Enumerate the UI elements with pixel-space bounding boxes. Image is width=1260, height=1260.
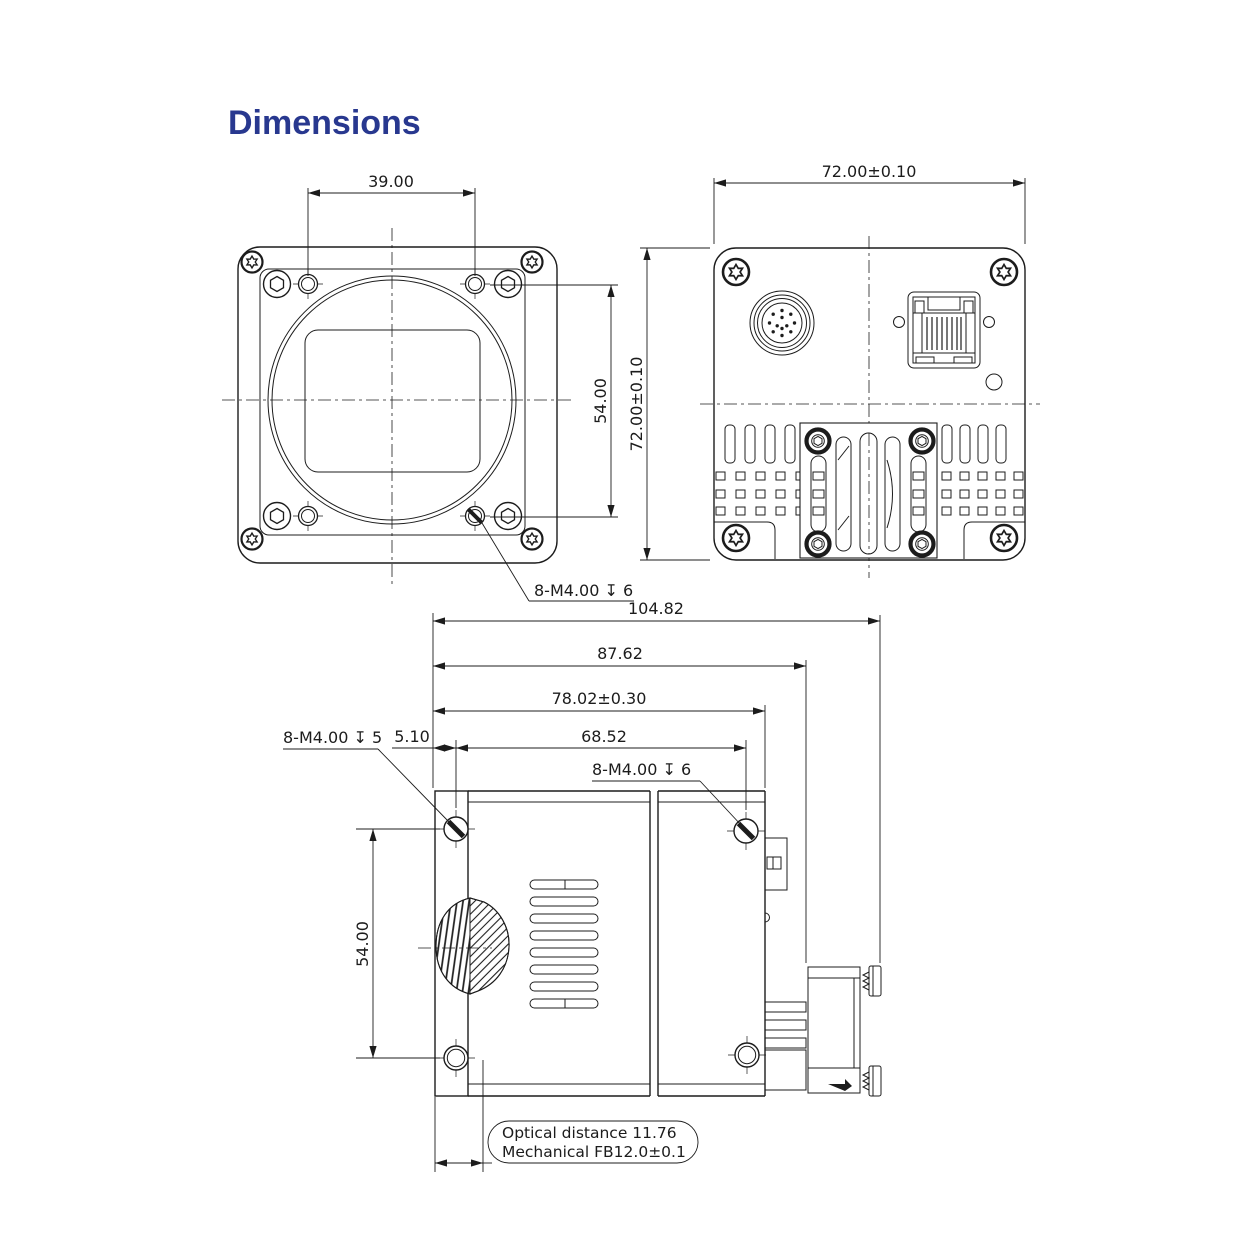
optical-note-bubble: Optical distance 11.76 Mechanical FB12.0…: [488, 1121, 698, 1163]
m4-thread-hole: [293, 501, 323, 531]
corner-screw-icon: [242, 529, 263, 550]
page-title: Dimensions: [228, 104, 421, 142]
note-side-thread-rear: 8-M4.00 ↧ 6: [592, 760, 691, 779]
side-view-dimensions: 104.82 87.62 78.02±0.30 5.10 68.52 54.00…: [283, 599, 880, 1172]
side-screw-icon: [437, 1039, 475, 1077]
dim-back-width: 72.00±0.10: [822, 162, 917, 181]
corner-screw-icon: [522, 252, 543, 273]
note-front-thread: 8-M4.00 ↧ 6: [534, 581, 633, 600]
hex-socket-screw-icon: [264, 271, 291, 298]
dim-front-width: 39.00: [368, 172, 414, 191]
dim-side-height: 54.00: [353, 921, 372, 967]
connector-block: [808, 966, 881, 1096]
dim-side-to-connector: 87.62: [597, 644, 643, 663]
corner-screw-icon: [242, 252, 263, 273]
port-side-hole: [984, 317, 995, 328]
plate-screw-icon: [807, 430, 830, 453]
dim-front-height: 54.00: [591, 378, 610, 424]
hex-socket-screw-icon: [264, 503, 291, 530]
port-side-hole: [894, 317, 905, 328]
thumbscrew: [863, 1066, 881, 1096]
note-side-thread-front: 8-M4.00 ↧ 5: [283, 728, 382, 747]
dim-side-screws: 68.52: [581, 727, 627, 746]
mounting-plate: [800, 423, 937, 558]
note-optical-line2: Mechanical FB12.0±0.1: [502, 1143, 686, 1161]
thumbscrew: [863, 966, 881, 996]
corner-screw-icon: [723, 259, 749, 285]
lens: [418, 898, 509, 994]
corner-screw-icon: [723, 525, 749, 551]
note-optical-line1: Optical distance 11.76: [502, 1124, 677, 1142]
hex-socket-screw-icon: [495, 271, 522, 298]
corner-screw-icon: [991, 525, 1017, 551]
ethernet-port: [894, 292, 995, 368]
dim-back-height: 72.00±0.10: [627, 357, 646, 452]
dimension-drawing-page: Dimensions 39.00 54.00 8-M4.0: [0, 0, 1260, 1260]
front-view-dimensions: 39.00 54.00 8-M4.00 ↧ 6: [308, 172, 634, 601]
side-vent-slots: [530, 880, 598, 1008]
plate-screw-icon: [911, 430, 934, 453]
side-screw-icon: [727, 812, 765, 850]
rear-features: [765, 838, 806, 1090]
back-view: [700, 236, 1040, 578]
plate-screw-icon: [807, 533, 830, 556]
side-view: [418, 791, 881, 1096]
indicator-hole: [986, 374, 1002, 390]
dim-side-total: 104.82: [628, 599, 684, 618]
connector-arrow-mark: [828, 1079, 852, 1091]
side-screw-icon: [728, 1036, 766, 1074]
corner-screw-icon: [991, 259, 1017, 285]
plate-screw-icon: [911, 533, 934, 556]
sensor-window: [305, 330, 480, 472]
dim-side-offset: 5.10: [394, 727, 430, 746]
technical-drawing-canvas: Dimensions 39.00 54.00 8-M4.0: [0, 0, 1260, 1260]
front-mount-plate: [260, 269, 525, 535]
corner-screw-icon: [522, 529, 543, 550]
front-view: [222, 228, 575, 588]
hex-socket-screw-icon: [495, 503, 522, 530]
dim-side-body: 78.02±0.30: [552, 689, 647, 708]
io-connector: [750, 291, 814, 355]
